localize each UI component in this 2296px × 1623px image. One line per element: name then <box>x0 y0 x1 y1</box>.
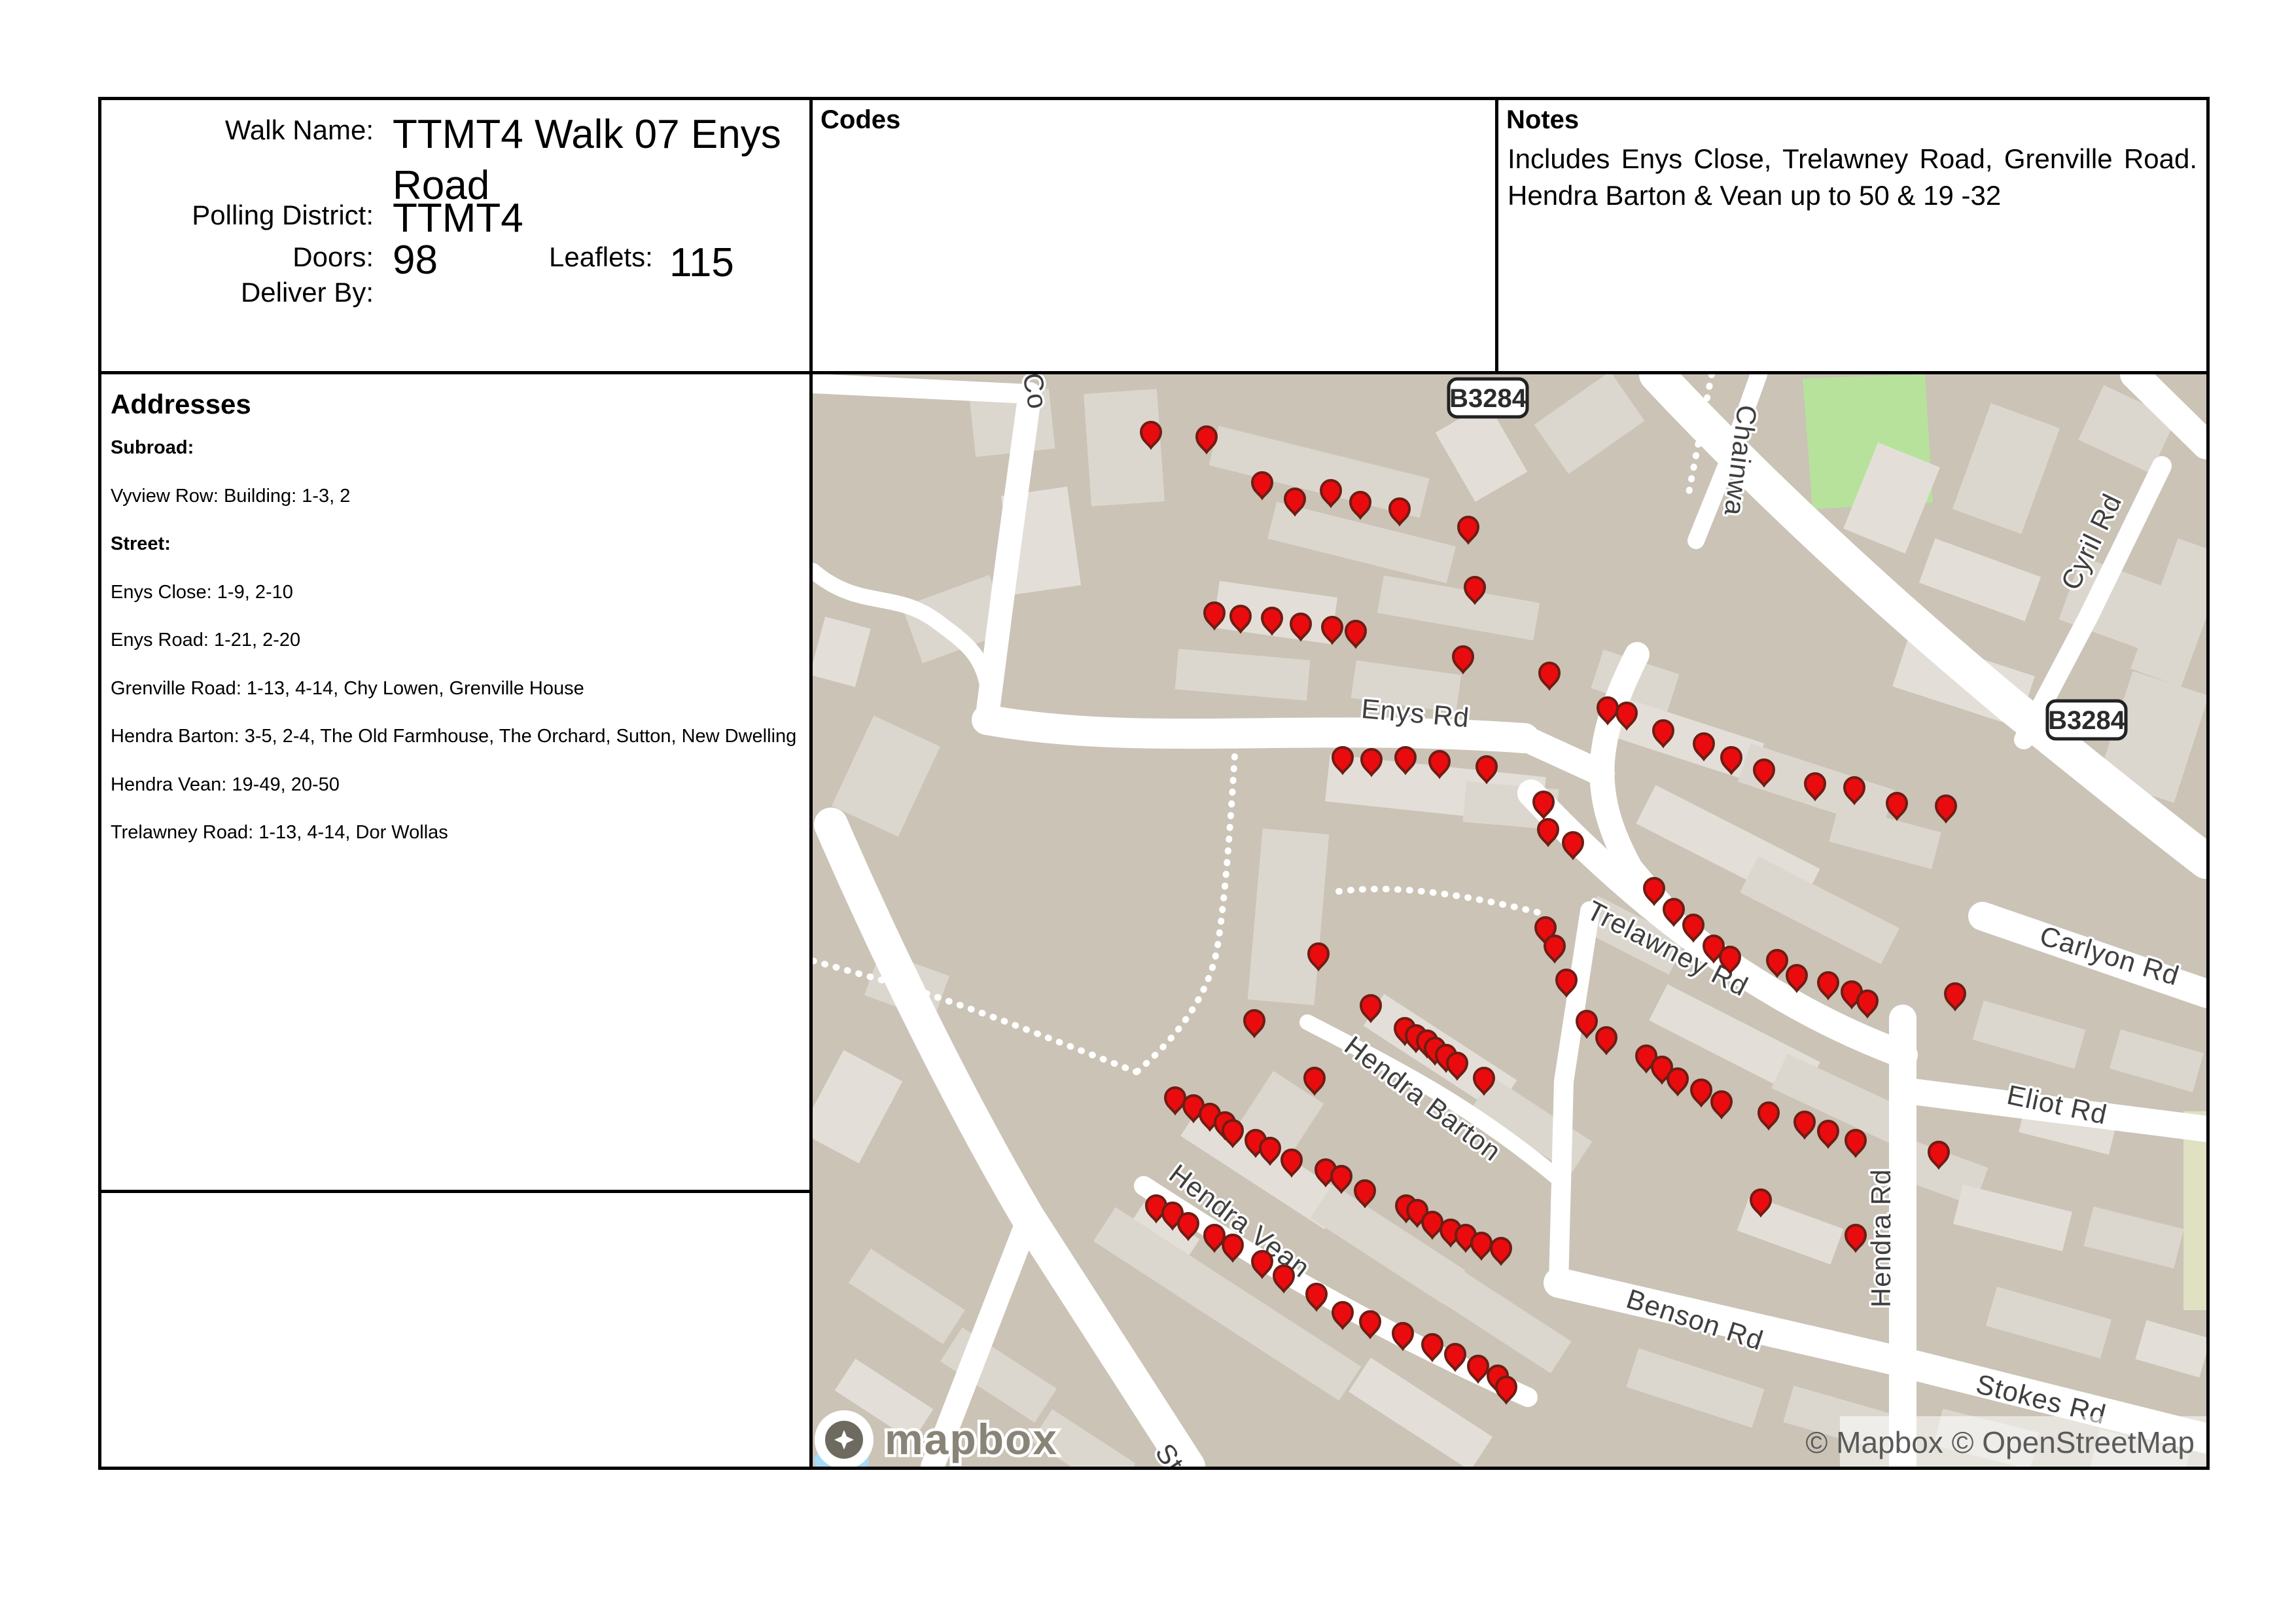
walk-sheet-page: { "header": { "walk_name_label": "Walk N… <box>0 0 2296 1623</box>
address-section-heading: Street: <box>111 533 171 555</box>
addresses-cell: Addresses Subroad:Vyview Row: Building: … <box>98 371 813 1193</box>
address-line: Enys Road: 1-21, 2-20 <box>111 630 300 651</box>
map-attribution: © Mapbox © OpenStreetMap <box>1805 1416 2206 1467</box>
addresses-title: Addresses <box>111 389 251 420</box>
polling-district-label: Polling District: <box>108 200 374 231</box>
address-line: Grenville Road: 1-13, 4-14, Chy Lowen, G… <box>111 678 584 700</box>
empty-cell <box>98 1190 813 1470</box>
address-line: Trelawney Road: 1-13, 4-14, Dor Wollas <box>111 822 448 844</box>
codes-label: Codes <box>821 105 900 135</box>
route-badge: B3284 <box>2047 701 2126 739</box>
road-label: Hendra Rd <box>1865 1169 1896 1308</box>
leaflets-label: Leaflets: <box>549 241 653 273</box>
address-section-heading: Subroad: <box>111 437 194 459</box>
doors-label: Doors: <box>108 241 374 273</box>
notes-label: Notes <box>1506 105 1579 135</box>
walk-name-label: Walk Name: <box>108 115 374 146</box>
doors-value: 98 <box>393 235 438 286</box>
attribution-text: © Mapbox © OpenStreetMap <box>1805 1425 2195 1459</box>
map-cell: CoChainwaCyril RdEnys RdTrelawney RdCarl… <box>809 371 2210 1470</box>
route-badge: B3284 <box>1449 379 1527 417</box>
road-label: Co <box>1017 374 1053 412</box>
address-line: Hendra Vean: 19-49, 20-50 <box>111 774 340 796</box>
address-line: Vyview Row: Building: 1-3, 2 <box>111 486 350 507</box>
header-notes-cell: Notes Includes Enys Close, Trelawney Roa… <box>1495 97 2210 374</box>
leaflets-value: 115 <box>669 238 734 289</box>
road <box>813 383 1030 394</box>
address-line: Enys Close: 1-9, 2-10 <box>111 582 293 603</box>
deliver-by-label: Deliver By: <box>108 277 374 308</box>
mapbox-logo: mapbox <box>814 1410 1058 1467</box>
header-codes-cell: Codes <box>809 97 1498 374</box>
notes-text: Includes Enys Close, Trelawney Road, Gre… <box>1508 141 2197 214</box>
route-badge-text: B3284 <box>1449 384 1527 413</box>
header-walk-cell: Walk Name: TTMT4 Walk 07 Enys Road Polli… <box>98 97 813 374</box>
mapbox-logo-text: mapbox <box>885 1415 1058 1463</box>
route-badge-text: B3284 <box>2048 706 2126 735</box>
address-line: Hendra Barton: 3-5, 2-4, The Old Farmhou… <box>111 726 796 747</box>
map-canvas: CoChainwaCyril RdEnys RdTrelawney RdCarl… <box>813 374 2206 1467</box>
